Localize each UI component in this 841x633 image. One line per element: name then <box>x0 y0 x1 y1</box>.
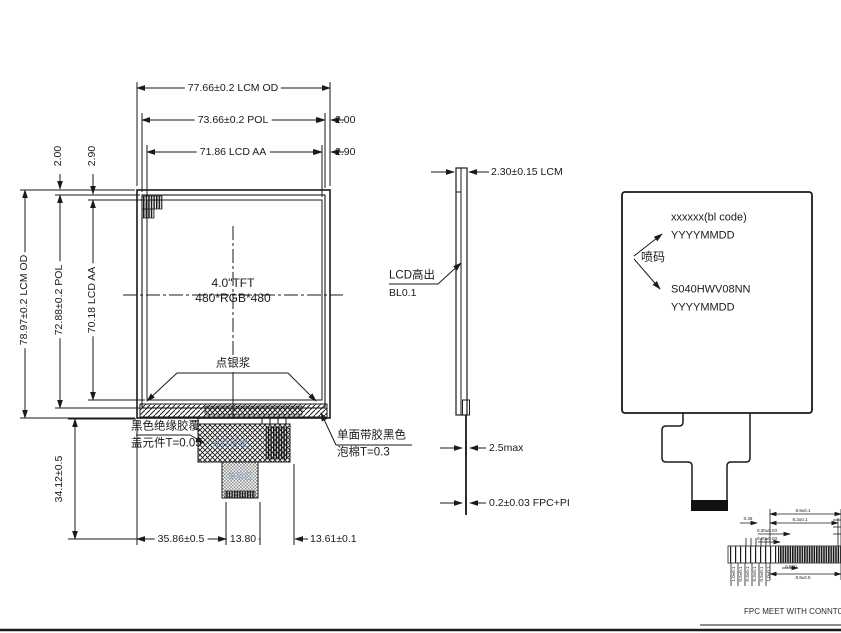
foam-note-line2: 泡棉T=0.3 <box>337 447 390 459</box>
spray-code-label: 喷码 <box>641 251 665 263</box>
dim-gap-aa-top: 2.90 <box>87 146 98 166</box>
dim-bottom-left: 35.86±0.5 <box>155 534 208 545</box>
side-view-linework <box>389 168 489 515</box>
connector-note: FPC MEET WITH CONNTOR;FH26 <box>744 608 841 616</box>
drawing-linework <box>0 0 841 633</box>
dim-fpc-thickness: 0.2±0.03 FPC+PI <box>489 498 570 509</box>
detail-dim-top-1: 8.9±0.1 <box>796 509 811 514</box>
dim-component-max: 2.5max <box>489 443 523 454</box>
dim-aa-width: 71.86 LCD AA <box>197 147 270 158</box>
dim-bottom-right: 13.61±0.1 <box>310 534 357 545</box>
dim-lcm-od-width: 77.66±0.2 LCM OD <box>185 83 281 94</box>
detail-dim-bottom-1: 0.5(2) <box>785 565 797 570</box>
detail-dim-left-2: 0.5±0.1 <box>739 567 744 582</box>
drawing-canvas: 77.66±0.2 LCM OD 73.66±0.2 POL 71.86 LCD… <box>0 0 841 633</box>
insulation-note-line1: 黑色绝缘胶覆 <box>131 421 200 433</box>
dim-gap-pol-top: 2.00 <box>53 146 64 166</box>
foam-note-line1: 单面带胶黑色 <box>337 430 406 442</box>
dim-pol-width: 73.66±0.2 POL <box>195 115 272 126</box>
dim-tail-height: 34.12±0.5 <box>54 453 65 506</box>
dim-aa-height: 70.18 LCD AA <box>87 264 98 337</box>
dim-bottom-middle: 13.80 <box>227 534 259 545</box>
detail-dim-left-6: 1.0±0.1 <box>767 567 772 582</box>
marking-bl-code: xxxxxx(bl code) <box>671 213 747 224</box>
dim-gap-pol-right: 2.00 <box>335 115 355 126</box>
detail-dim-bottom-2: 8.9±0.5 <box>796 576 811 581</box>
detail-dim-mid-3: 0.20±0.03 <box>757 537 777 542</box>
marking-date-top: YYYYMMDD <box>671 231 735 242</box>
marking-model: S040HWV08NN <box>671 285 750 296</box>
detail-dim-left-1: 1.0±0.1 <box>732 567 737 582</box>
detail-dim-mid-2: 0.30±0.03 <box>757 529 777 534</box>
dim-thickness: 2.30±0.15 LCM <box>491 167 563 178</box>
lcd-protrusion-note-line2: BL0.1 <box>389 288 416 299</box>
dim-gap-aa-right: 2.90 <box>335 147 355 158</box>
insulation-note-line2: 盖元件T=0.05 <box>131 438 202 450</box>
dim-pol-height: 72.88±0.2 POL <box>54 262 65 339</box>
detail-dim-left-3: 0.3±0.1 <box>746 567 751 582</box>
component-area-label: 元件区域 <box>212 440 248 449</box>
dim-lcm-od-height: 78.97±0.2 LCM OD <box>19 252 30 348</box>
panel-type-label: 4.0"TFT <box>212 277 255 289</box>
marking-date-bottom: YYYYMMDD <box>671 303 735 314</box>
detail-dim-top-2: 8.3±0.1 <box>793 518 808 523</box>
detail-dim-left-5: 0.5±0.1 <box>760 567 765 582</box>
sheet-border <box>0 625 841 630</box>
single-layer-area-label: 单层区 <box>228 473 252 481</box>
detail-dim-mid-1: 0.45 <box>744 517 753 522</box>
detail-dim-left-4: 0.3±0.1 <box>753 567 758 582</box>
lcd-protrusion-note-line1: LCD高出 <box>389 270 435 282</box>
silver-paste-label: 点银浆 <box>213 358 254 370</box>
panel-resolution-label: 480*RGB*480 <box>195 292 270 304</box>
